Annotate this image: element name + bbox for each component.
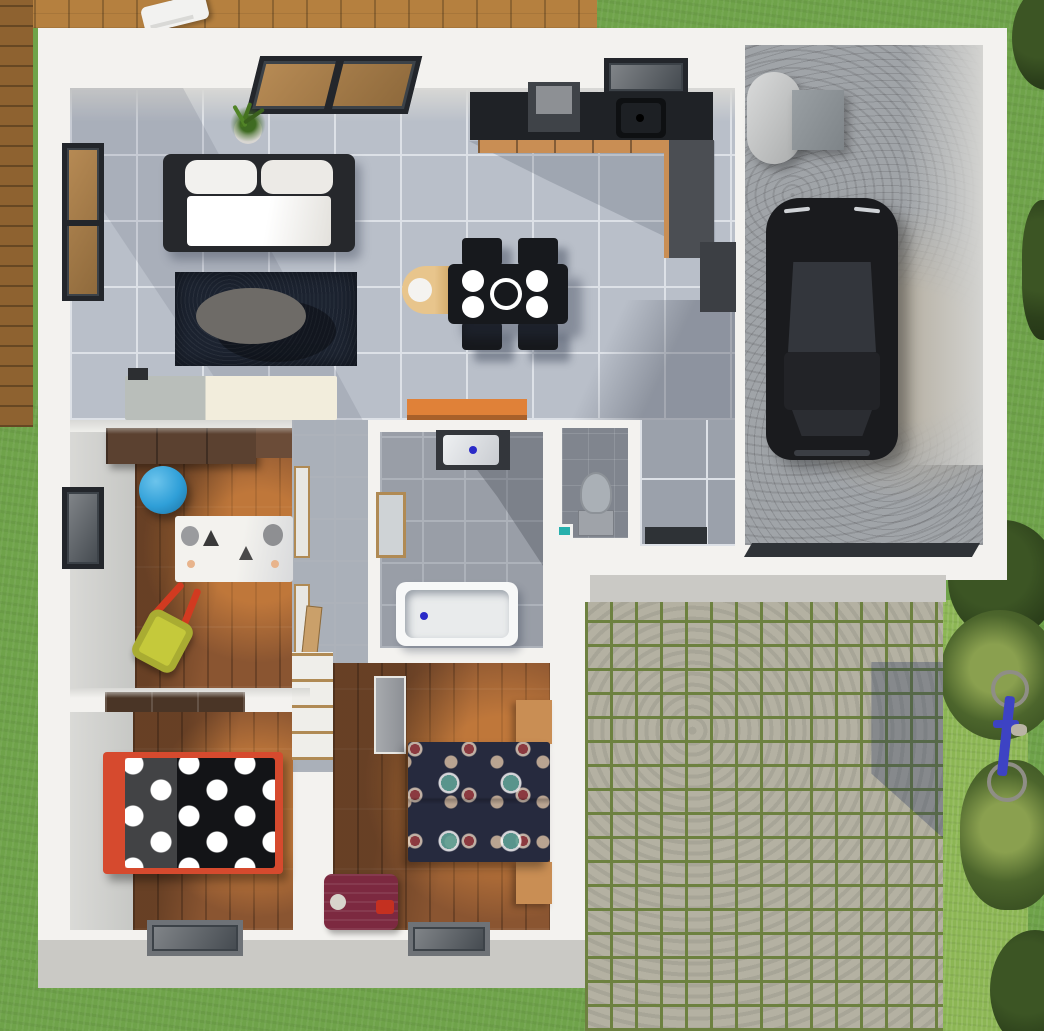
south-terrace-strip	[38, 940, 590, 988]
bicycle	[985, 670, 1031, 805]
wood-deck-side	[0, 0, 33, 427]
play-mat-teepee-2	[239, 546, 253, 560]
kitchen-appliance	[700, 242, 736, 312]
play-mat-zebra-2	[263, 524, 283, 546]
kitchen-countertop	[470, 92, 713, 140]
driveway-apron	[590, 575, 946, 602]
wc-sink-basin	[559, 527, 570, 535]
sofa	[163, 154, 355, 252]
kitchen-sink	[616, 98, 666, 138]
cooker-hood-top	[536, 86, 572, 114]
suitcase-red-box	[376, 900, 394, 914]
kids-side-window	[62, 487, 104, 569]
dining-chair-bottom-2	[518, 322, 558, 350]
plate-2	[526, 270, 548, 292]
vanity-sink	[436, 430, 510, 470]
play-mat-dot-1	[187, 560, 195, 568]
bedroom1-wall-face	[70, 688, 310, 698]
hall-door-1	[294, 466, 310, 558]
boiler-unit	[792, 90, 844, 150]
play-mat-dot-2	[271, 560, 279, 568]
kitchen-sink-window	[604, 58, 688, 96]
sofa-cushion-right	[261, 160, 333, 194]
hall-closet-shelves	[292, 652, 333, 760]
kitchen-cabinet-fronts	[478, 140, 668, 153]
potted-plant	[230, 112, 266, 146]
dining-chair-bottom-1	[462, 322, 502, 350]
car	[766, 198, 898, 460]
cooker-hood	[528, 82, 580, 132]
bathtub	[396, 582, 518, 646]
suitcase-wheel	[330, 894, 346, 910]
nightstand-bottom	[516, 862, 552, 904]
tv-object	[128, 368, 148, 380]
bed1-pillow-zone	[125, 758, 177, 868]
cobblestone-driveway	[585, 602, 943, 1031]
car-roof	[784, 352, 880, 410]
kitchen-window-glass	[611, 65, 681, 89]
garage-door	[744, 543, 980, 557]
living-side-window	[62, 143, 104, 301]
bedroom1-facade-window	[147, 920, 243, 956]
play-mat-teepee-1	[203, 530, 219, 546]
car-hood-trim-1	[784, 207, 810, 214]
bed2-fold	[408, 742, 550, 862]
kids-window-glass	[69, 494, 97, 562]
plate-1	[462, 270, 484, 292]
bedroom1-window-glass	[154, 927, 236, 949]
high-chair-seat	[408, 278, 432, 302]
sofa-cushion-left	[185, 160, 257, 194]
garage-wall-face-right	[905, 45, 983, 465]
play-mat	[175, 516, 293, 582]
car-hood-trim-2	[854, 207, 880, 214]
kitchen-sink-drain	[636, 114, 644, 122]
nightstand-top	[516, 700, 552, 744]
kitchen-tall-cabinet	[664, 140, 714, 258]
play-mat-zebra-1	[181, 526, 199, 546]
living-side-window-mullion	[67, 220, 99, 226]
bedroom2-closet	[374, 676, 406, 754]
low-sideboard	[125, 376, 337, 420]
toilet-bowl	[580, 472, 612, 514]
bathroom-mirror	[376, 492, 406, 558]
exercise-ball	[139, 466, 187, 514]
suitcase	[324, 874, 398, 930]
wood-deck	[0, 0, 597, 28]
bathtub-drain	[420, 612, 428, 620]
floor-plan-render	[0, 0, 1044, 1031]
wc-corner-sink	[556, 524, 573, 541]
orange-sideboard	[407, 399, 527, 420]
plate-4	[526, 296, 548, 318]
patio-window	[246, 56, 422, 114]
bedroom2-window-glass	[415, 929, 483, 949]
serving-bowl	[494, 282, 518, 306]
front-door-mat	[645, 527, 707, 544]
car-rear-trim	[794, 450, 870, 456]
dining-chair-top-1	[462, 238, 502, 266]
kids-wall-face	[70, 420, 292, 434]
car-rear-window	[792, 410, 872, 436]
plate-3	[462, 296, 484, 318]
bicycle-seat	[1011, 724, 1027, 736]
sofa-seat	[187, 196, 331, 246]
bedroom2-facade-window	[408, 922, 490, 956]
dining-chair-top-2	[518, 238, 558, 266]
coffee-table	[196, 288, 306, 344]
dining-table	[448, 264, 568, 324]
car-windshield	[788, 262, 876, 352]
vanity-faucet	[469, 446, 477, 454]
